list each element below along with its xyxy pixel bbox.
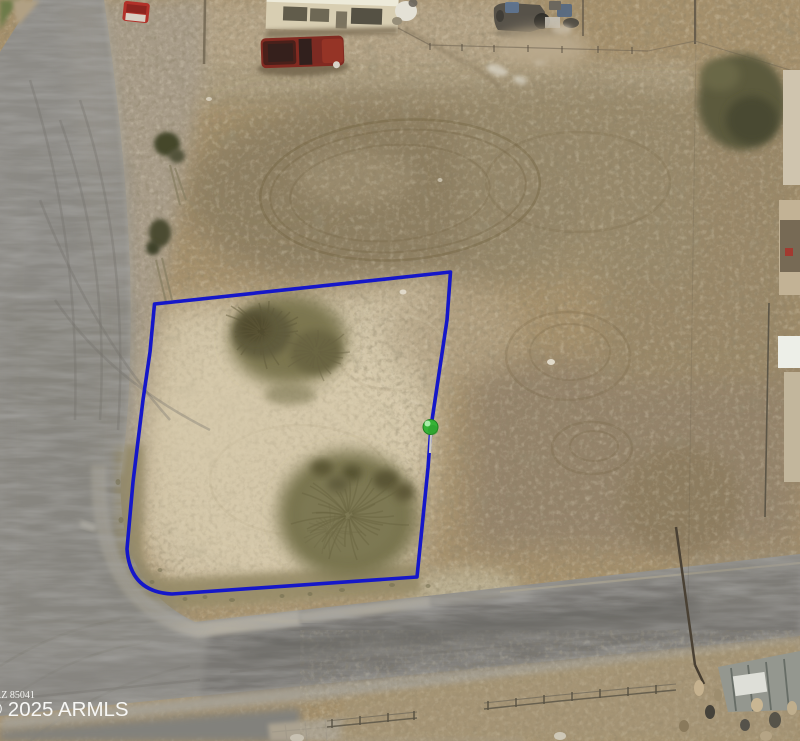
svg-text:© 2025 ARMLS: © 2025 ARMLS (0, 698, 129, 721)
